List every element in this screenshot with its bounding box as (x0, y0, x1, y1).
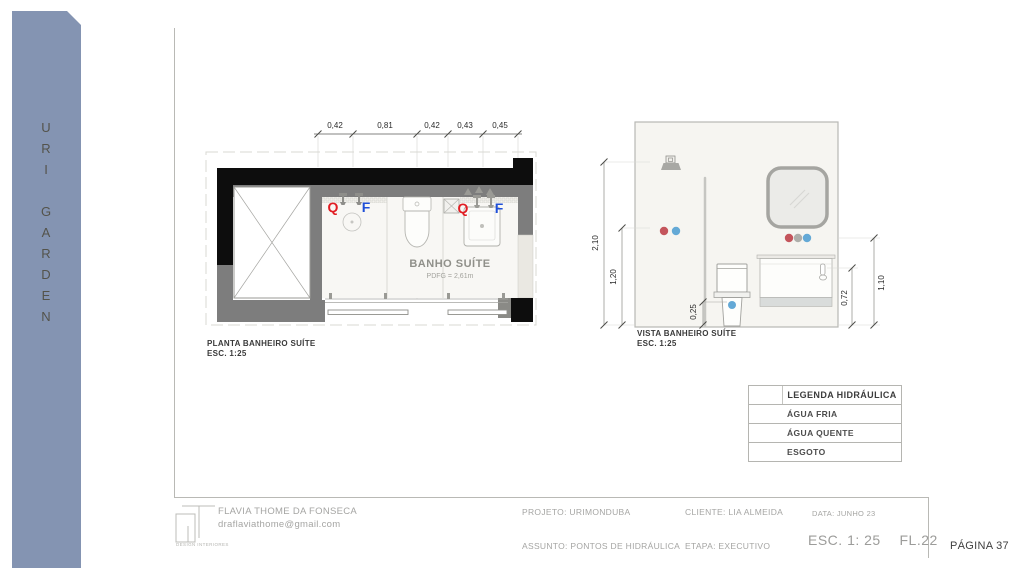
legend-item-label: ESGOTO (783, 447, 901, 457)
brand-letter: G (12, 201, 81, 222)
point-label-q1: Q (328, 199, 339, 215)
titleblock-escala: ESC. 1: 25 (808, 532, 881, 548)
plan-scale: ESC. 1:25 (207, 349, 247, 358)
brand-letter: R (12, 243, 81, 264)
dim-total-height: 2,10 (591, 235, 600, 251)
legend-item-agua-quente: ÁGUA QUENTE (749, 423, 901, 442)
wall-right-gray (518, 185, 533, 235)
elevation-view: 2,10 1,20 0,25 0,72 (590, 108, 890, 350)
designer-logo (173, 498, 223, 548)
legend-item-label: ÁGUA QUENTE (783, 428, 901, 438)
wall-left-black (217, 168, 233, 265)
dim-counter-height: 0,72 (840, 290, 849, 306)
brand-letter: I (12, 159, 81, 180)
titleblock-etapa: ETAPA: EXECUTIVO (685, 541, 770, 551)
legend-item-agua-fria: ÁGUA FRIA (749, 404, 901, 423)
wall-bottom-right-black (511, 298, 533, 322)
dim-shower-point: 1,20 (609, 269, 618, 285)
plan-dimension-chain: 0,42 0,81 0,42 0,43 0,45 (314, 121, 522, 138)
legend-item-esgoto: ESGOTO (749, 442, 901, 461)
plan-view: Q F Q F BANHO SUÍTE PDFG = 2,61m 0,42 (200, 105, 560, 370)
frame-right-line (928, 497, 929, 558)
plan-dim-1: 0,42 (327, 121, 343, 130)
page-number: PÁGINA 37 (950, 540, 1009, 552)
point-esgoto-sink (794, 234, 802, 242)
point-label-q2: Q (458, 200, 469, 216)
vanity-elevation (757, 255, 835, 307)
brand-vertical-text: U R I G A R D E N (12, 117, 81, 327)
wall-divider-gray (310, 197, 322, 302)
brand-letter: N (12, 306, 81, 327)
legend-header-spacer (749, 386, 783, 404)
titleblock-folha: FL.22 (899, 532, 937, 548)
brand-sidebar: U R I G A R D E N (12, 11, 81, 568)
titleblock-cliente: CLIENTE: LIA ALMEIDA (685, 507, 783, 517)
toilet-plan (403, 197, 431, 247)
wall-bottom-left-gray (217, 300, 325, 322)
point-label-f2: F (495, 200, 504, 216)
plan-dim-2: 0,81 (377, 121, 393, 130)
legend-header: LEGENDA HIDRÁULICA (749, 386, 901, 404)
hydraulic-legend: LEGENDA HIDRÁULICA ÁGUA FRIA ÁGUA QUENTE… (748, 385, 902, 462)
plan-dim-5: 0,45 (492, 121, 508, 130)
mirror (768, 168, 827, 227)
wall-corner-black (513, 158, 533, 185)
legend-item-label: ÁGUA FRIA (783, 409, 901, 419)
point-label-f1: F (362, 199, 371, 215)
point-agua-fria-sink (803, 234, 811, 242)
brand-letter: D (12, 264, 81, 285)
brand-letter: R (12, 138, 81, 159)
elevation-caption: VISTA BANHEIRO SUÍTE (637, 329, 737, 338)
plan-dim-3: 0,42 (424, 121, 440, 130)
plan-caption: PLANTA BANHEIRO SUÍTE (207, 339, 316, 348)
point-agua-fria-toilet (728, 301, 736, 309)
brand-letter: E (12, 285, 81, 306)
elevation-scale: ESC. 1:25 (637, 339, 677, 348)
logo-caption: DESIGN INTERIORES (176, 542, 229, 547)
legend-title: LEGENDA HIDRÁULICA (783, 390, 901, 400)
designer-email: draflaviathome@gmail.com (218, 519, 340, 530)
titleblock-projeto: PROJETO: URIMONDUBA (522, 507, 631, 517)
titleblock-data: DATA: JUNHO 23 (812, 509, 876, 518)
wall-right-light (518, 235, 533, 298)
dim-sink-point: 1,10 (877, 275, 886, 291)
shower-box (234, 187, 310, 298)
frame-bottom-line (174, 497, 928, 498)
point-agua-fria-shower (672, 227, 680, 235)
room-info: PDFG = 2,61m (427, 273, 474, 280)
door-jamb-gray (498, 298, 511, 318)
frame-left-line (174, 28, 175, 497)
dim-toilet-point: 0,25 (689, 304, 698, 320)
designer-name: FLAVIA THOME DA FONSECA (218, 506, 357, 517)
plan-dim-4: 0,43 (457, 121, 473, 130)
brand-letter: A (12, 222, 81, 243)
wall-top-black (217, 168, 513, 185)
point-agua-quente-shower (660, 227, 668, 235)
brand-letter: U (12, 117, 81, 138)
titleblock-assunto: ASSUNTO: PONTOS DE HIDRÁULICA (522, 541, 680, 551)
room-name: BANHO SUÍTE (409, 257, 490, 270)
drawing-sheet: U R I G A R D E N (0, 0, 1024, 576)
point-agua-quente-sink (785, 234, 793, 242)
